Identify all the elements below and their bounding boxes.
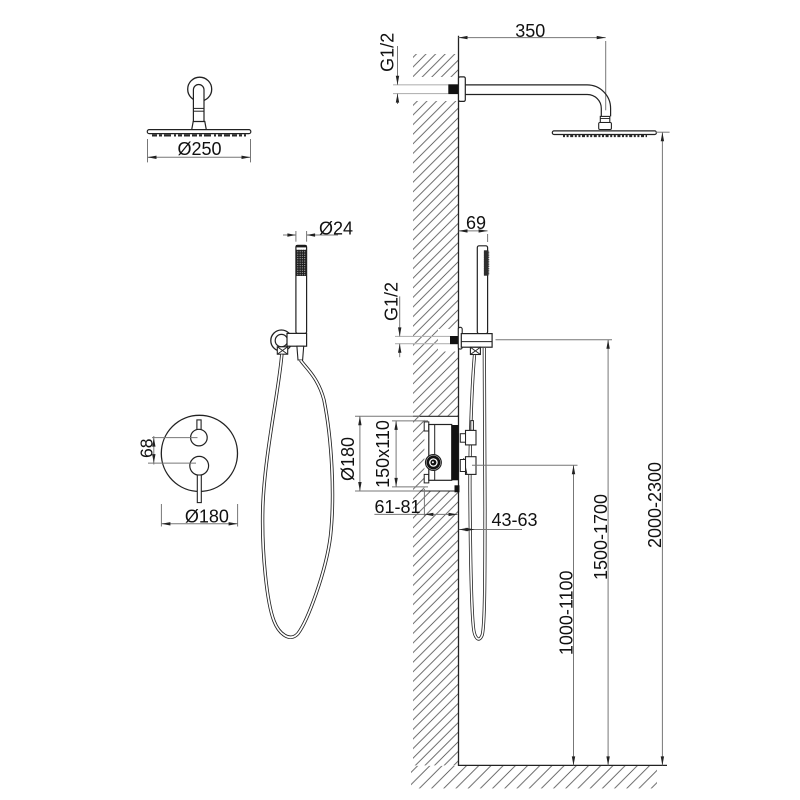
svg-text:Ø250: Ø250 xyxy=(177,139,221,159)
svg-text:Ø24: Ø24 xyxy=(319,219,353,239)
svg-text:G1/2: G1/2 xyxy=(377,33,397,72)
svg-text:Ø180: Ø180 xyxy=(185,507,229,527)
svg-text:69: 69 xyxy=(466,213,486,233)
svg-text:68: 68 xyxy=(136,438,156,457)
svg-text:150x110: 150x110 xyxy=(373,420,393,488)
svg-text:61-81: 61-81 xyxy=(374,497,420,517)
svg-text:1000-1100: 1000-1100 xyxy=(556,570,576,655)
svg-text:43-63: 43-63 xyxy=(491,510,537,530)
svg-text:350: 350 xyxy=(515,21,545,41)
svg-text:1500-1700: 1500-1700 xyxy=(591,494,611,580)
svg-text:G1/2: G1/2 xyxy=(382,282,402,321)
svg-text:Ø180: Ø180 xyxy=(338,437,358,481)
svg-text:2000-2300: 2000-2300 xyxy=(645,462,665,548)
